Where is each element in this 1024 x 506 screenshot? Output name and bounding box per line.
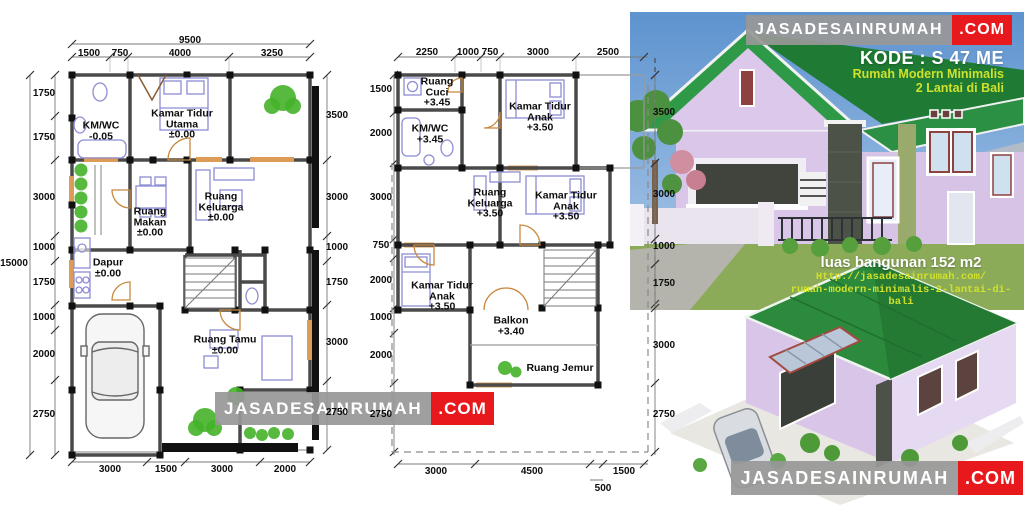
- plants-plan2: [498, 361, 522, 378]
- brand-name: JASADESAINRUMAH: [746, 15, 952, 45]
- kode-block: KODE : S 47 ME Rumah Modern Minimalis 2 …: [853, 48, 1004, 95]
- poster-canvas: 9500150075040003250150001750175030001000…: [0, 0, 1024, 506]
- design-subtitle-1: Rumah Modern Minimalis: [853, 68, 1004, 82]
- plan2-walls: [398, 75, 610, 385]
- brand-tld: .COM: [958, 461, 1023, 495]
- roof-overlay-text: luas bangunan 152 m2 Http://jasadesainru…: [782, 254, 1020, 309]
- brand-name: JASADESAINRUMAH: [731, 461, 958, 495]
- car-plan1: [81, 314, 149, 438]
- building-area: luas bangunan 152 m2: [782, 254, 1020, 271]
- design-subtitle-2: 2 Lantai di Bali: [853, 82, 1004, 96]
- website-url: Http://jasadesainrumah.com/: [782, 271, 1020, 284]
- website-url-slug: rumah-modern-minimalis-2-lantai-di-bali: [782, 284, 1020, 309]
- design-code: KODE : S 47 ME: [853, 48, 1004, 68]
- brand-banner-center: JASADESAINRUMAH .COM: [215, 392, 494, 425]
- stairs-plan2: [544, 250, 596, 306]
- brand-banner-top: JASADESAINRUMAH .COM: [746, 15, 1012, 45]
- brand-tld: .COM: [952, 15, 1012, 45]
- brand-banner-bottom: JASADESAINRUMAH .COM: [731, 461, 1023, 495]
- stairs-plan1: [185, 258, 235, 308]
- plan2-columns: [395, 72, 614, 389]
- brand-tld: .COM: [431, 392, 493, 425]
- brand-name: JASADESAINRUMAH: [215, 392, 431, 425]
